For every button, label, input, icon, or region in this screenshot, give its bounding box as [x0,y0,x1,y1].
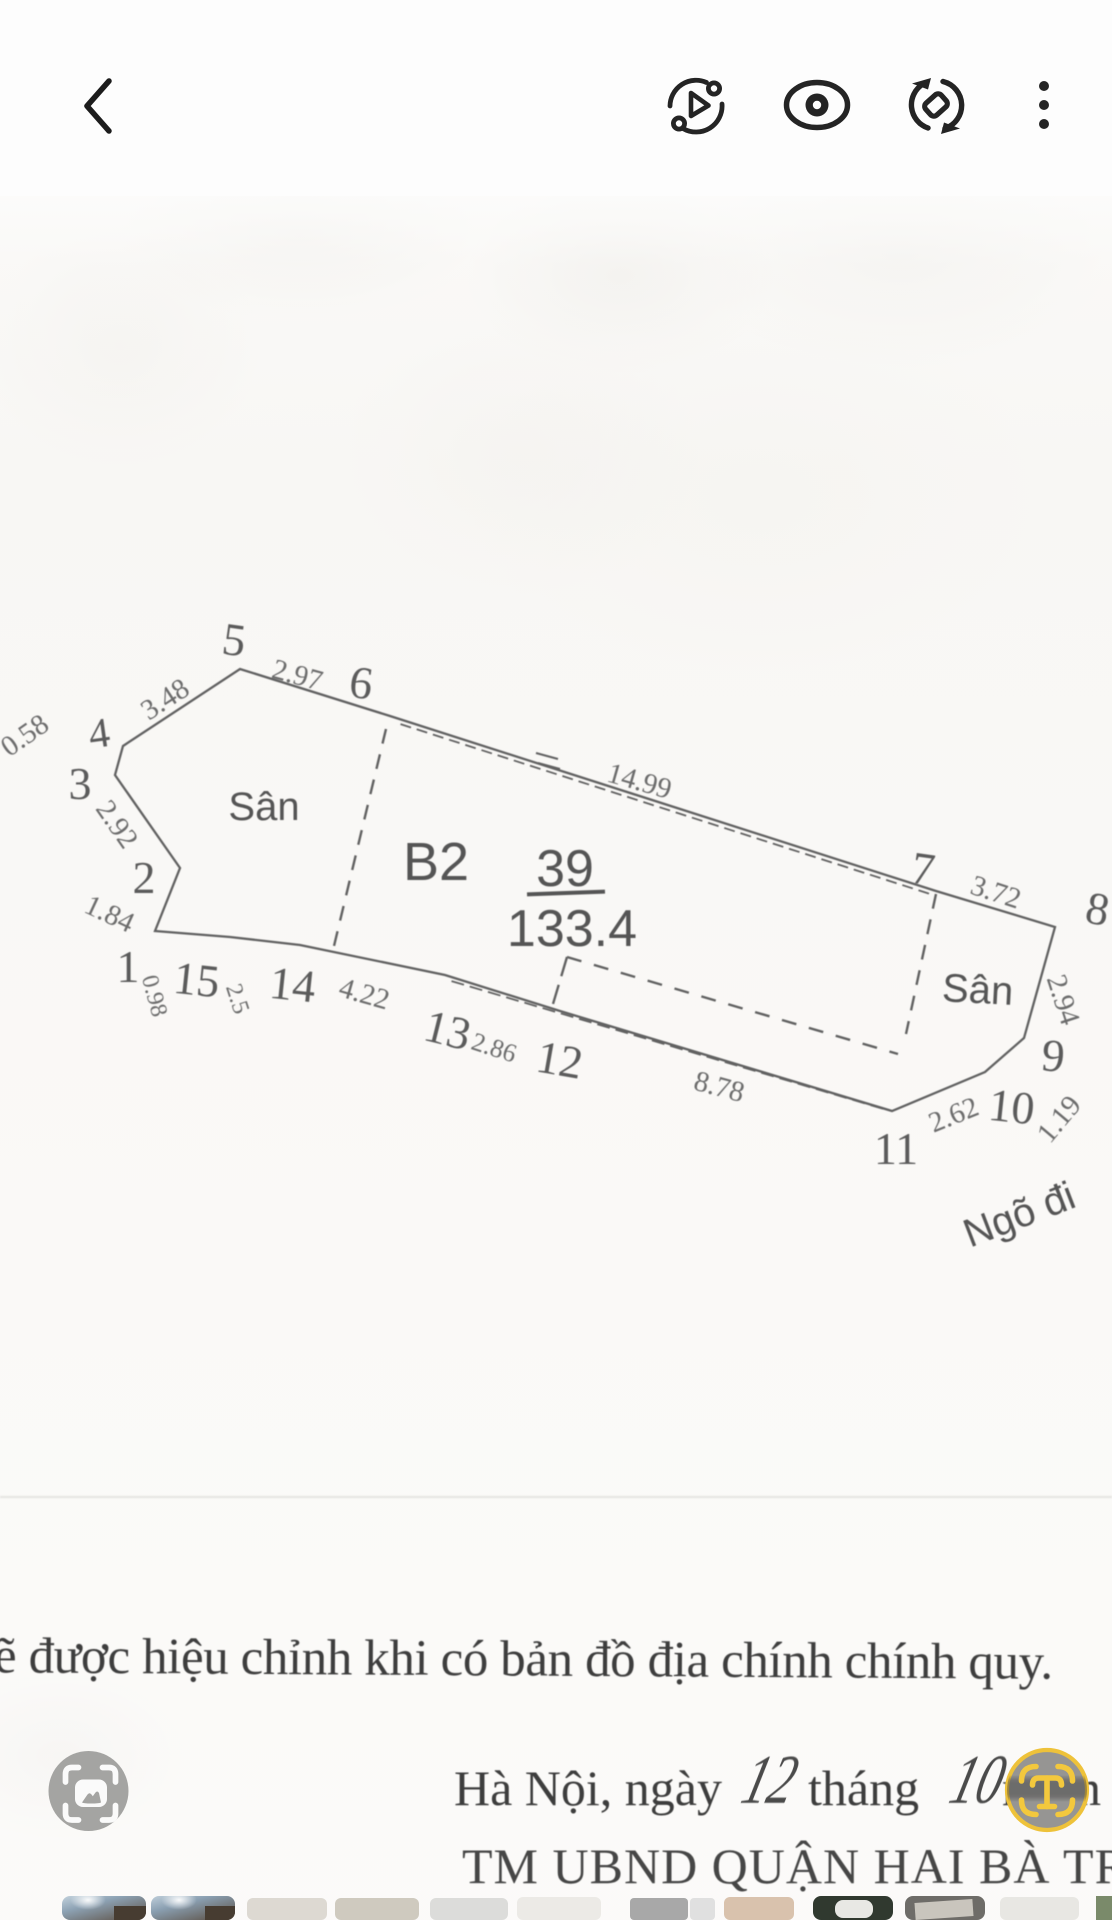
svg-text:2.5: 2.5 [220,981,254,1018]
svg-text:2.94: 2.94 [1040,971,1086,1030]
svg-text:0.58: 0.58 [0,708,55,763]
svg-text:5: 5 [219,613,249,667]
svg-text:3: 3 [69,758,92,809]
svg-text:2.97: 2.97 [269,653,326,697]
svg-text:10: 10 [986,1079,1037,1135]
svg-text:1.19: 1.19 [1031,1090,1088,1149]
svg-text:Ngõ đi: Ngõ đi [957,1174,1081,1257]
svg-text:3.72: 3.72 [967,869,1025,915]
svg-text:12: 12 [533,1031,587,1089]
svg-text:B2: B2 [403,832,469,892]
svg-text:7: 7 [908,842,938,896]
svg-text:14: 14 [267,957,318,1013]
svg-text:2.86: 2.86 [468,1027,520,1069]
svg-text:9: 9 [1040,1029,1067,1082]
svg-text:13: 13 [419,1000,476,1061]
svg-text:1: 1 [117,941,140,992]
svg-text:39: 39 [536,840,594,898]
svg-text:2: 2 [133,852,156,903]
svg-text:1.84: 1.84 [80,889,140,940]
svg-text:15: 15 [171,952,222,1008]
svg-text:8: 8 [1082,882,1112,936]
svg-text:3.48: 3.48 [135,672,195,726]
svg-text:14.99: 14.99 [604,757,676,806]
svg-text:2.62: 2.62 [924,1091,983,1140]
svg-text:6: 6 [346,656,376,710]
svg-text:11: 11 [874,1123,918,1174]
svg-text:0.98: 0.98 [136,972,172,1019]
svg-text:4: 4 [86,710,113,758]
svg-text:8.78: 8.78 [691,1065,748,1109]
svg-text:133.4: 133.4 [507,900,637,958]
svg-text:Sân: Sân [228,785,299,829]
svg-text:4.22: 4.22 [335,972,393,1017]
svg-text:Sân: Sân [941,966,1014,1014]
